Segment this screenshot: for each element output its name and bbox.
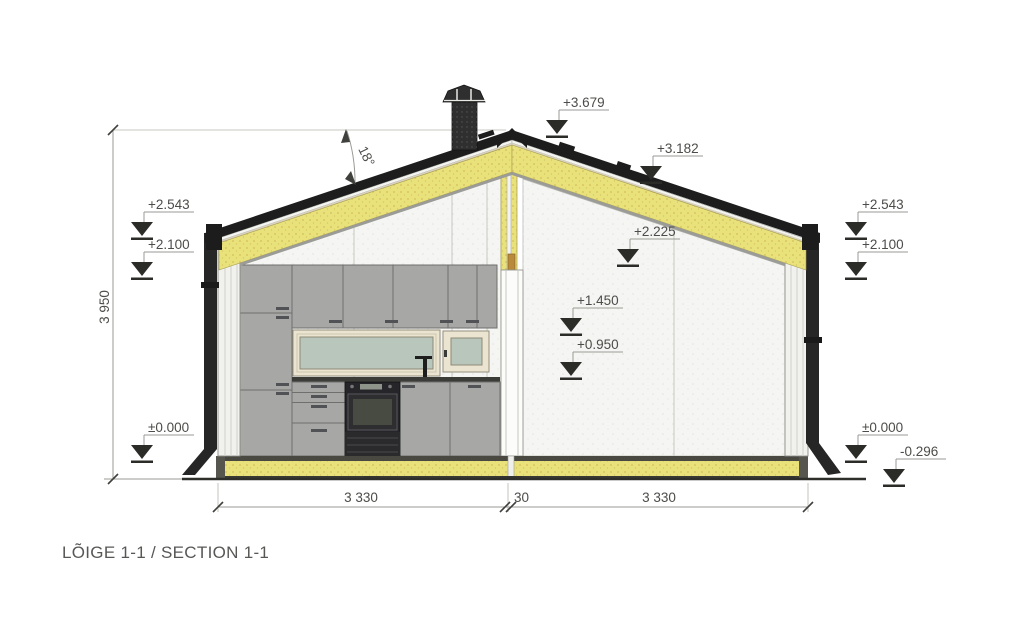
- elevation-marker: +2.100: [845, 237, 908, 280]
- width-dim-left: 3 330: [344, 490, 378, 505]
- drawing-sheet: 3 950 18° 3 330 30 3 330 +: [0, 0, 1024, 617]
- elevation-label: ±0.000: [862, 420, 903, 435]
- kitchen-elevation: [240, 265, 500, 456]
- elevation-marker: +2.543: [131, 197, 194, 240]
- section-drawing: 3 950 18° 3 330 30 3 330 +: [0, 0, 1024, 617]
- wall-cabinets: [292, 265, 497, 328]
- width-dim-right: 3 330: [642, 490, 676, 505]
- elevation-label: -0.296: [900, 444, 938, 459]
- chimney: [443, 85, 485, 150]
- elevation-marker: +3.679: [546, 95, 609, 138]
- elevation-label: ±0.000: [148, 420, 189, 435]
- roof-angle-label: 18°: [355, 144, 377, 169]
- kitchen-window-small: [443, 331, 489, 372]
- elevation-label: +2.100: [862, 237, 904, 252]
- left-exterior-wall: [218, 243, 240, 456]
- right-downpipe: [804, 235, 841, 475]
- right-exterior-wall: [785, 243, 808, 456]
- height-dim-label: 3 950: [97, 290, 112, 324]
- roof-angle-dimension: 18°: [341, 129, 378, 185]
- kitchen-window-long: [293, 330, 440, 376]
- oven: [345, 382, 400, 456]
- elevation-label: +1.450: [577, 293, 619, 308]
- elevation-marker: +2.100: [131, 237, 194, 280]
- elevation-label: +3.182: [657, 141, 699, 156]
- elevation-marker: +2.543: [845, 197, 908, 240]
- countertop: [292, 377, 500, 382]
- elevation-label: +2.225: [634, 224, 676, 239]
- module-gap: [508, 456, 514, 479]
- width-dimension: 3 330 30 3 330: [213, 483, 813, 512]
- elevation-marker: -0.296: [883, 444, 946, 487]
- floor-slab: [216, 456, 808, 480]
- elevation-label: +2.543: [862, 197, 904, 212]
- width-dim-gap: 30: [514, 490, 529, 505]
- module-partition: [501, 150, 523, 456]
- chimney-cap: [443, 85, 485, 102]
- height-dimension: 3 950: [97, 125, 118, 484]
- elevation-label: +3.679: [563, 95, 605, 110]
- drawing-title: LÕIGE 1-1 / SECTION 1-1: [62, 543, 269, 562]
- elevation-marker: +3.182: [640, 141, 703, 184]
- tall-cabinet: [240, 265, 292, 456]
- elevation-label: +2.100: [148, 237, 190, 252]
- elevation-marker: ±0.000: [131, 420, 194, 463]
- left-eave-fascia: [206, 224, 222, 250]
- elevation-marker: ±0.000: [845, 420, 908, 463]
- left-downpipe: [182, 233, 219, 475]
- elevation-label: +2.543: [148, 197, 190, 212]
- building-section: [104, 85, 866, 480]
- elevation-label: +0.950: [577, 337, 619, 352]
- right-eave-fascia: [802, 224, 818, 250]
- timber-block: [508, 254, 515, 270]
